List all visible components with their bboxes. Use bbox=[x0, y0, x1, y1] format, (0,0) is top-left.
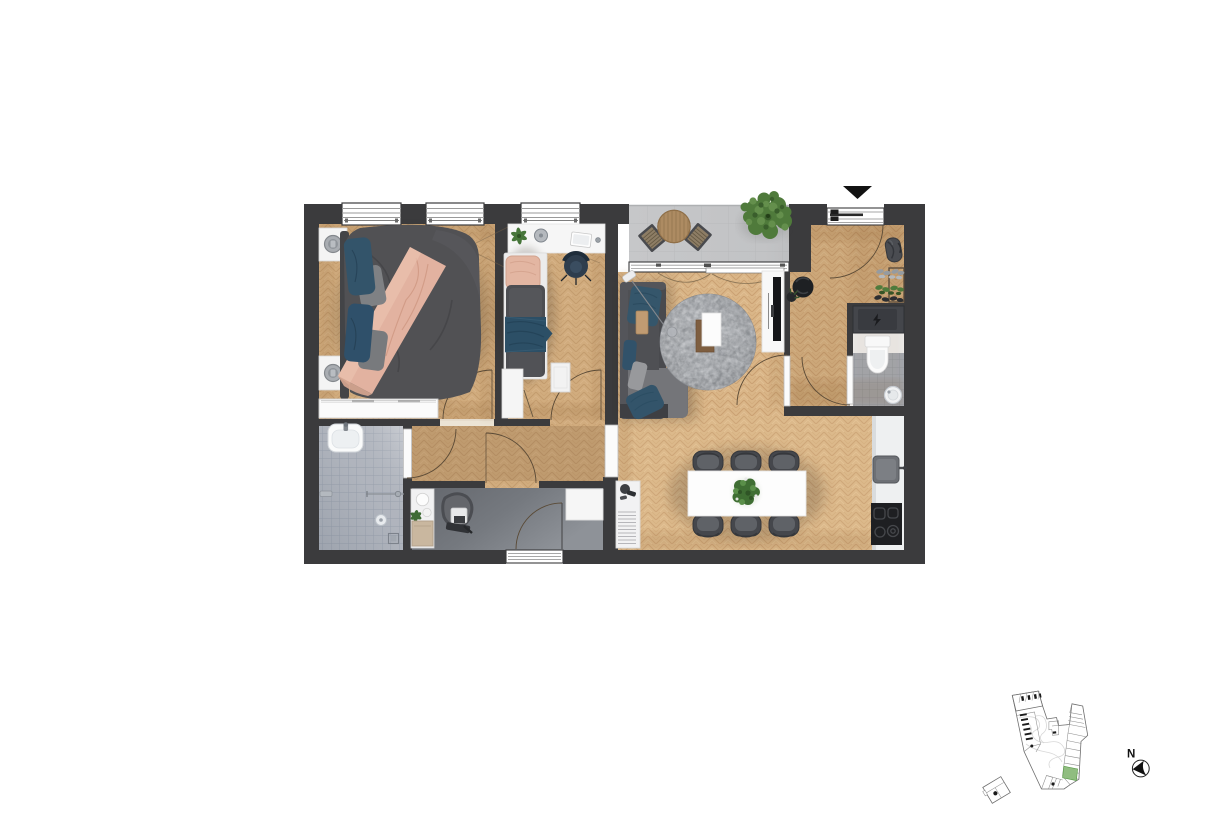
svg-text:N: N bbox=[1127, 749, 1135, 761]
